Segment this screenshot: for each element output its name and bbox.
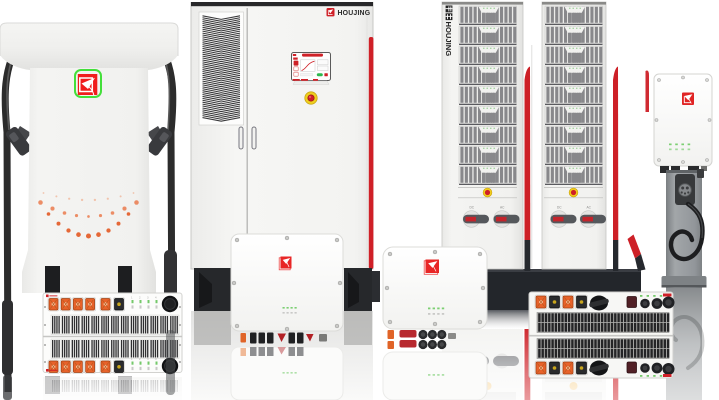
svg-text:DC: DC: [470, 206, 475, 210]
svg-text:AC: AC: [587, 206, 592, 210]
svg-text:HOUJING: HOUJING: [338, 10, 371, 17]
svg-text:DC: DC: [557, 206, 562, 210]
svg-text:HOUJING: HOUJING: [444, 22, 453, 57]
svg-text:AC: AC: [500, 206, 505, 210]
